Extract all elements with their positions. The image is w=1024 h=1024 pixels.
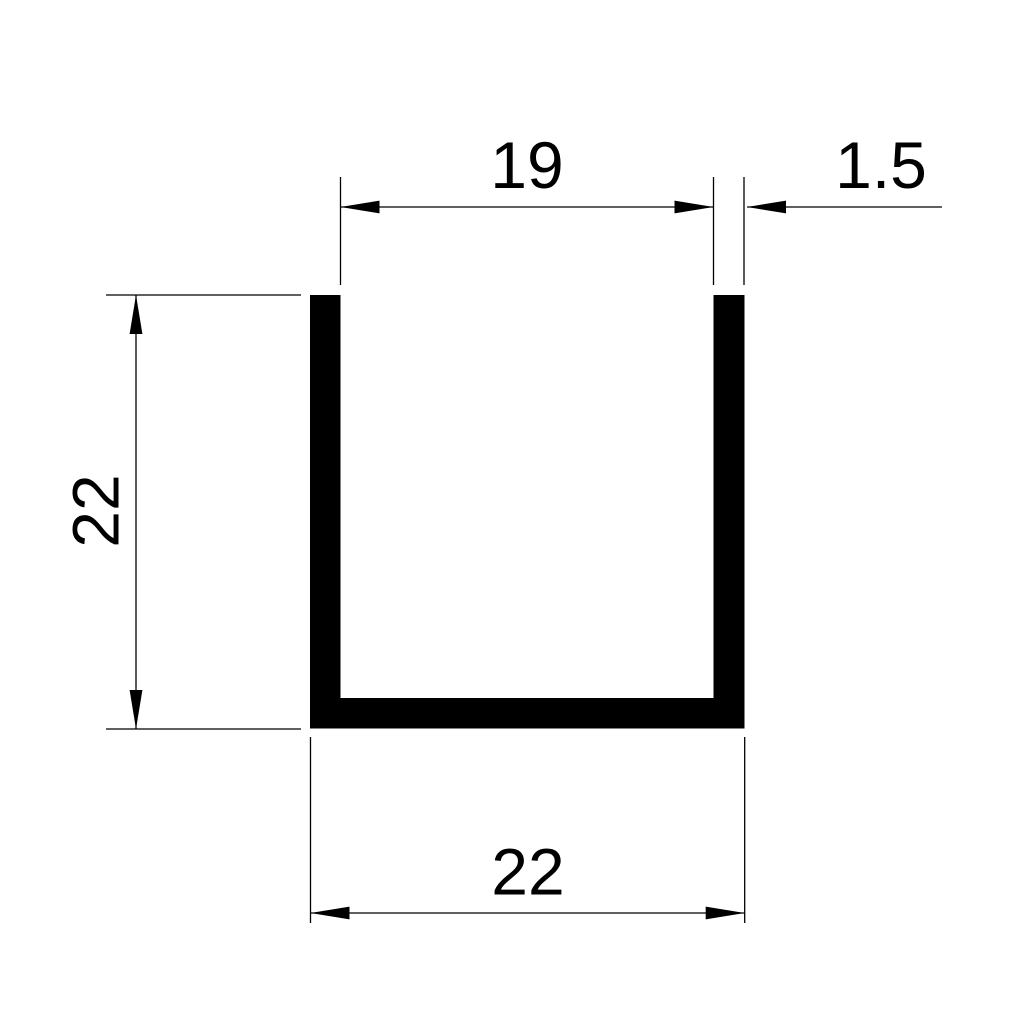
svg-text:22: 22 — [59, 474, 133, 547]
svg-text:1.5: 1.5 — [835, 128, 927, 202]
svg-text:19: 19 — [490, 128, 563, 202]
svg-text:22: 22 — [491, 835, 564, 909]
